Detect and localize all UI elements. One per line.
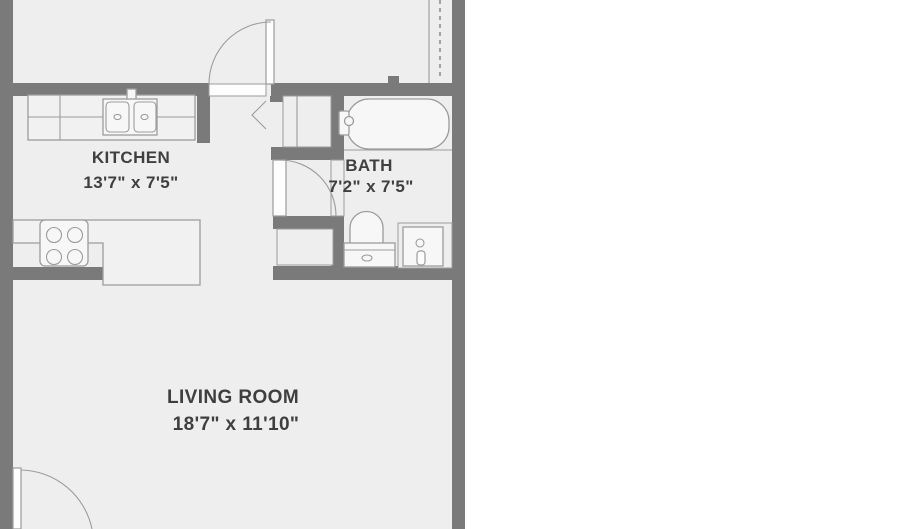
wall-kitchen-south bbox=[13, 267, 103, 280]
toilet-bowl bbox=[350, 212, 383, 246]
hall-door-opening bbox=[209, 84, 266, 96]
bath-label: BATH bbox=[345, 156, 393, 176]
wall-top-right bbox=[271, 83, 465, 96]
bifold-closet-interior bbox=[283, 96, 331, 147]
wall-top-left bbox=[0, 83, 209, 96]
wall-kitchen-pier bbox=[197, 96, 210, 143]
bathtub bbox=[347, 99, 449, 149]
wall-closet-jamb-nub bbox=[388, 76, 399, 84]
entry-door-leaf bbox=[13, 468, 21, 529]
hall-door-leaf bbox=[266, 20, 274, 84]
bath-dimensions: 7'2" x 7'5" bbox=[328, 177, 413, 197]
wall-closet-bottom bbox=[271, 147, 344, 160]
floorplan-canvas: KITCHEN 13'7" x 7'5" BATH 7'2" x 7'5" LI… bbox=[0, 0, 900, 529]
living-room-label: LIVING ROOM bbox=[167, 387, 299, 409]
kitchen-double-sink bbox=[103, 99, 157, 135]
lower-closet-interior bbox=[277, 229, 333, 265]
tub-faucet bbox=[345, 117, 354, 126]
wall-vestibule-bottom bbox=[273, 216, 342, 229]
wall-closet-corner-stub bbox=[270, 96, 283, 102]
floorplan-drawing bbox=[0, 0, 900, 529]
bath-door-leaf bbox=[273, 160, 286, 216]
wall-left-exterior bbox=[0, 0, 13, 529]
wall-right-exterior bbox=[452, 0, 465, 529]
vanity-drain bbox=[417, 251, 425, 265]
kitchen-label: KITCHEN bbox=[92, 148, 170, 168]
kitchen-dimensions: 13'7" x 7'5" bbox=[83, 173, 178, 193]
living-room-dimensions: 18'7" x 11'10" bbox=[173, 414, 300, 436]
